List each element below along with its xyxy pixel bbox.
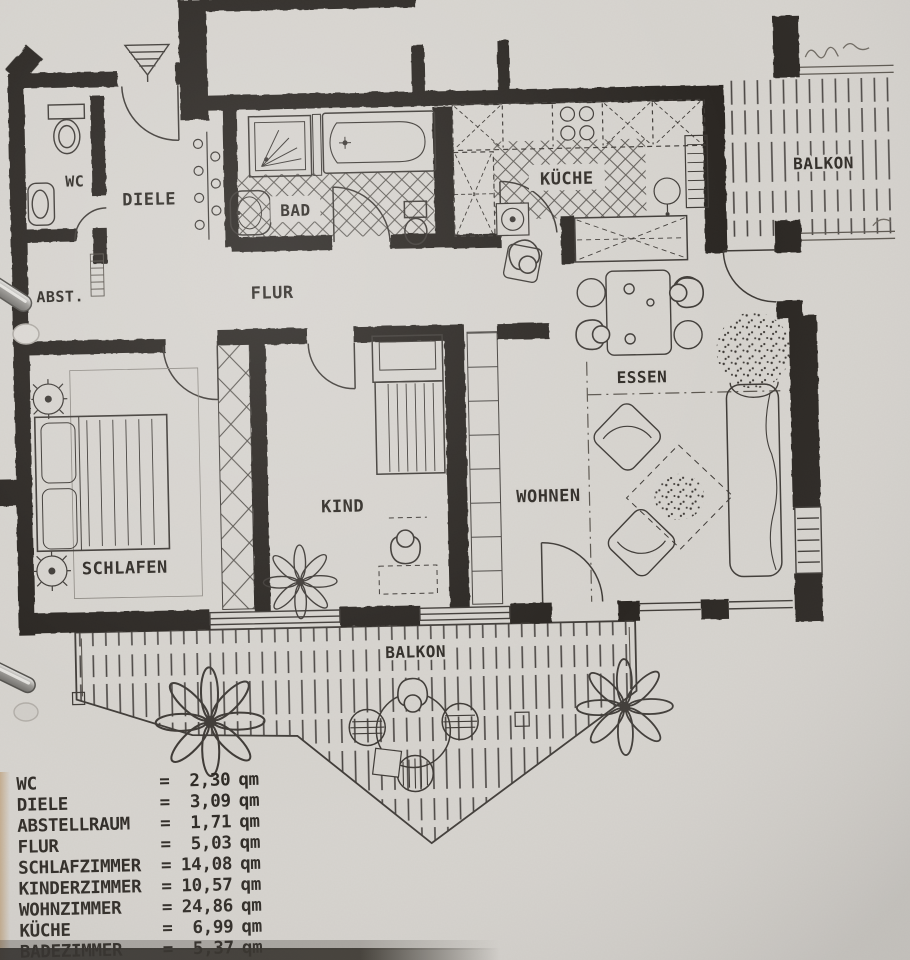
photo-grain bbox=[0, 0, 910, 960]
floor-plan-photo: WC DIELE ABST. BAD KÜCHE FLUR ESSEN SCHL… bbox=[0, 0, 910, 960]
